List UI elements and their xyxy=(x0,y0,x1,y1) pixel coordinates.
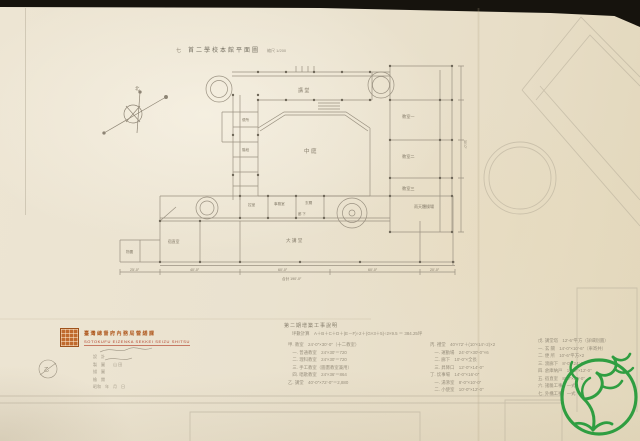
legend-item: 三. 渡廊下 8′-0″×24′-0″ xyxy=(538,360,609,368)
legend-item: 乙. 講堂 40′-0″×72′-0″＝2,880 xyxy=(288,379,359,387)
legend-column: 丙. 禮堂 40′×72′＋(10′×14′÷2)×2 一. 運動場 24′-0… xyxy=(430,341,495,394)
column-dot xyxy=(257,99,259,101)
plan-label: 大 講 堂 xyxy=(286,237,303,244)
column-dot xyxy=(439,99,441,101)
column-dot xyxy=(341,71,343,73)
title-scale: 縮尺 1/200 xyxy=(267,48,286,54)
column-dot xyxy=(199,261,201,263)
legend-item: 丁. 炊事場 14′-0″×16′-0″ xyxy=(430,371,495,379)
plan-label: 教室三 xyxy=(402,185,415,192)
legend-item: 一. 普通教室 24′×30′＝720 xyxy=(288,349,359,357)
plan-label: 合計 190′-0″ xyxy=(282,276,302,281)
title-index: 七 xyxy=(176,47,181,54)
column-dot xyxy=(232,134,234,136)
plan-label: 講 堂 xyxy=(298,87,309,94)
legend-item: 甲. 教室 24′-0″×30′-0″（十二教室） xyxy=(288,341,359,349)
title-block-row: 設 計 xyxy=(93,353,125,361)
plan-label: 北 xyxy=(135,85,140,92)
legend-item: 二. 小使室 10′-0″×12′-0″ xyxy=(430,386,495,394)
column-dot xyxy=(159,261,161,263)
column-dot xyxy=(295,195,297,197)
legend-item: 五. 宿直室 8′-0″×10′-0″ xyxy=(538,375,609,383)
legend-item: 二. 便 所 10′-6″平方×2 xyxy=(538,352,609,360)
plan-label: 廊 下 xyxy=(298,211,306,216)
column-dot xyxy=(239,261,241,263)
column-dot xyxy=(267,217,269,219)
legend-column: 戊. 講堂塔 12′-6″平方（詳細別圖）一. 玄 關 14′-0″×10′-6… xyxy=(538,337,609,397)
plan-label: 20′-0″ xyxy=(430,268,440,272)
plan-label: 40′-0″ xyxy=(190,268,200,272)
column-dot xyxy=(285,71,287,73)
plan-label: 教室一 xyxy=(402,113,415,120)
plan-label: 60′-0″ xyxy=(368,268,378,272)
column-dot xyxy=(389,195,391,197)
title-block-row: 檢 閱 xyxy=(93,376,125,384)
column-dot xyxy=(369,99,371,101)
office-stamp: 臺灣總督府內務局營繕課 SOTOKUFU EIZENKA SEKKEI SEIZ… xyxy=(60,328,190,347)
legend-item: 一. 運動場 24′-0″×30′-0″×6 xyxy=(430,349,495,357)
plan-label: 宿直室 xyxy=(168,239,180,244)
column-dot xyxy=(285,99,287,101)
plan-label: 物置 xyxy=(126,249,134,254)
column-dot xyxy=(451,177,453,179)
plan-label: 便所 xyxy=(242,117,250,122)
legend-subheader: 坪數計算 A＋B＋C＋D＋(E－F)÷2＋(G×3＋5)÷2×9.5 ＝ 384… xyxy=(292,331,422,337)
title-block-row: 昭和 年 月 日 xyxy=(93,383,125,391)
column-dot xyxy=(439,139,441,141)
column-dot xyxy=(419,261,421,263)
column-dot xyxy=(313,71,315,73)
legend-item: 一. 玄 關 14′-0″×10′-6″（車寄共） xyxy=(538,345,609,353)
column-dot xyxy=(313,99,315,101)
column-dot xyxy=(451,231,453,233)
title-block-row: 描 圖 xyxy=(93,368,125,376)
legend-item: 一. 湯沸室 8′-0″×10′-0″ xyxy=(430,379,495,387)
column-dot xyxy=(389,65,391,67)
legend-item: 四. 倉庫納戸 10′-0″×12′-0″ xyxy=(538,367,609,375)
plan-label: 玄關 xyxy=(305,200,313,205)
legend-item: 二. 廊下 10′-0″×全長 xyxy=(430,356,495,364)
column-dot xyxy=(389,231,391,233)
column-dot xyxy=(451,139,453,141)
plan-label: 乙 xyxy=(44,366,49,373)
column-dot xyxy=(359,261,361,263)
column-dot xyxy=(389,139,391,141)
column-dot xyxy=(257,94,259,96)
column-dot xyxy=(159,220,161,222)
column-dot xyxy=(389,177,391,179)
legend-item: 三. 昇降口 12′-0″×14′-0″ xyxy=(430,364,495,372)
legend-item: 六. 諸雜工事 一式 xyxy=(538,382,609,390)
seal-icon xyxy=(60,328,79,347)
plan-label: 教室二 xyxy=(402,153,415,160)
plan-label: 中 庭 xyxy=(304,147,317,155)
column-dot xyxy=(199,220,201,222)
title-block-rows: 設 計製 圖 山 田描 圖檢 閱昭和 年 月 日 xyxy=(93,353,125,391)
column-dot xyxy=(341,99,343,101)
column-dot xyxy=(239,217,241,219)
column-dot xyxy=(369,71,371,73)
plan-label: 30′-0″ xyxy=(463,140,467,149)
column-dot xyxy=(451,195,453,197)
stamp-office-romanized: SOTOKUFU EIZENKA SEKKEI SEIZU SHITSU xyxy=(84,339,190,346)
column-dot xyxy=(257,134,259,136)
title-block-row: 製 圖 山 田 xyxy=(93,361,125,369)
column-dot xyxy=(323,195,325,197)
column-dot xyxy=(239,195,241,197)
legend-item: 戊. 講堂塔 12′-6″平方（詳細別圖） xyxy=(538,337,609,345)
column-dot xyxy=(295,217,297,219)
column-dots xyxy=(159,65,454,263)
photo-stage: 北講 堂中 庭便所階段教室一教室二教室三雨天體操場大 講 堂宿直室物置控室事務室… xyxy=(0,0,640,441)
legend-header: 第二期增築工事說明 xyxy=(284,322,338,329)
plan-label: 雨天體操場 xyxy=(414,203,434,209)
stamp-office-name: 臺灣總督府內務局營繕課 xyxy=(84,330,190,337)
column-dot xyxy=(299,261,301,263)
column-dot xyxy=(257,174,259,176)
column-dot xyxy=(452,261,454,263)
plan-label: 事務室 xyxy=(274,201,285,206)
legend-item: 七. 外構工事 一式 xyxy=(538,390,609,398)
plan-label: 60′-0″ xyxy=(278,268,288,272)
legend-item: 丙. 禮堂 40′×72′＋(10′×14′÷2)×2 xyxy=(430,341,495,349)
column-dot xyxy=(232,174,234,176)
drawing-title: 七 首二學校本館平面圖 縮尺 1/200 xyxy=(176,45,286,54)
column-dot xyxy=(451,99,453,101)
legend-item: 二. 理科教室 24′×30′＝720 xyxy=(288,356,359,364)
column-dot xyxy=(323,217,325,219)
legend-item: 四. 唱歌教室 24′×36′＝864 xyxy=(288,371,359,379)
plan-label: 控室 xyxy=(248,202,256,207)
column-dot xyxy=(257,71,259,73)
title-text: 首二學校本館平面圖 xyxy=(188,45,260,54)
column-dot xyxy=(232,94,234,96)
compass xyxy=(103,91,168,135)
column-dot xyxy=(451,65,453,67)
legend-column: 甲. 教室 24′-0″×30′-0″（十二教室） 一. 普通教室 24′×30… xyxy=(288,341,359,386)
column-dot xyxy=(389,99,391,101)
legend-item: 三. 手工教室（圖畫教室兼用） xyxy=(288,364,359,372)
column-dot xyxy=(267,195,269,197)
plan-label: 25′-0″ xyxy=(130,268,140,272)
column-dot xyxy=(439,177,441,179)
plan-label: 階段 xyxy=(242,147,250,152)
